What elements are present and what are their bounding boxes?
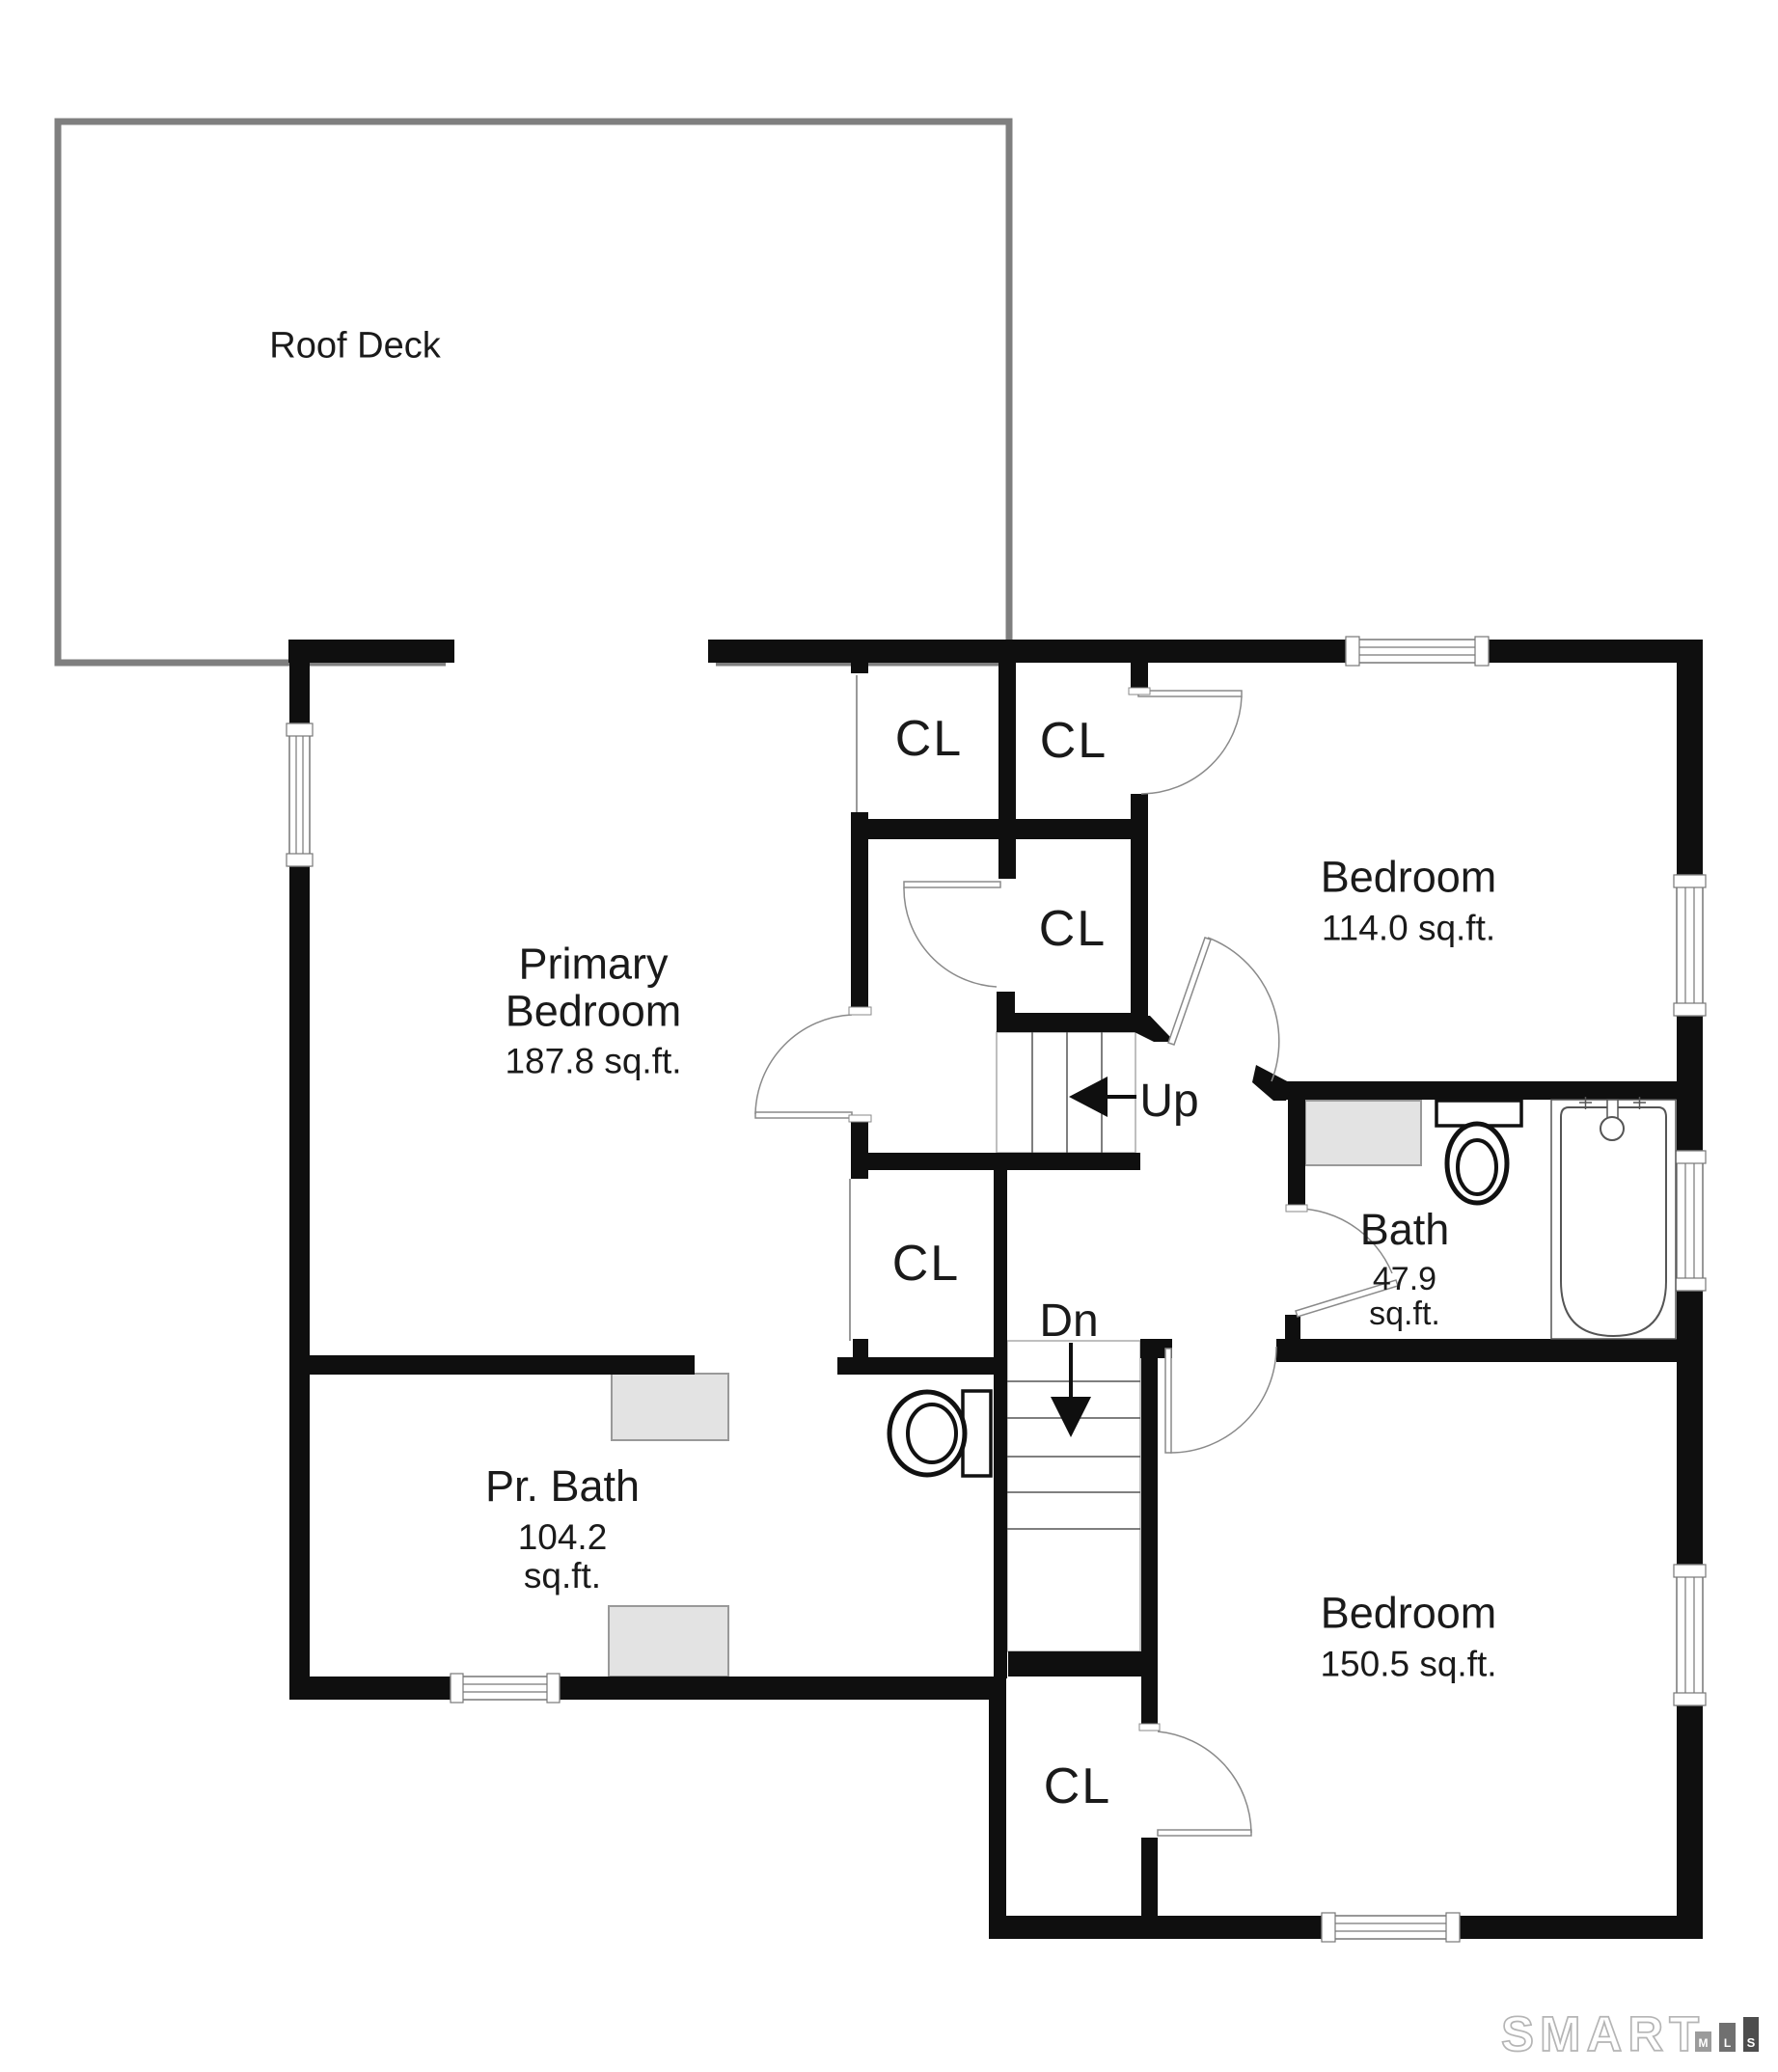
bath-vanity (1305, 1101, 1421, 1165)
pr-bath-vanity-upper (612, 1374, 728, 1440)
roof-deck-label: Roof Deck (269, 326, 440, 366)
stairs-down-label: Dn (1039, 1296, 1098, 1347)
bedroom-lower-label: Bedroom 150.5 sq.ft. (1320, 1591, 1496, 1684)
roof-deck-outline (58, 122, 1009, 669)
stairs-down (1007, 1341, 1140, 1651)
walls (288, 640, 1703, 1939)
floorplan-drawing: SMART M L S (0, 0, 1778, 2072)
svg-text:S: S (1747, 2035, 1756, 2050)
toilet-pr-bath (889, 1391, 991, 1476)
closet-label-hall: CL (892, 1237, 960, 1291)
svg-text:M: M (1699, 2036, 1709, 2050)
closet-label-top-right: CL (1040, 714, 1108, 768)
pr-bath-label: Pr. Bath 104.2 sq.ft. (485, 1463, 640, 1595)
pr-bath-vanity-lower (609, 1606, 728, 1677)
smartmls-logo: SMART M L S (1501, 2006, 1759, 2061)
primary-bedroom-label: Primary Bedroom 187.8 sq.ft. (505, 941, 681, 1080)
bedroom-upper-label: Bedroom 114.0 sq.ft. (1321, 855, 1497, 948)
bathtub (1551, 1097, 1676, 1339)
closet-label-middle: CL (1039, 902, 1107, 956)
window-right-upper (1674, 875, 1706, 1016)
stairs-up-label: Up (1139, 1077, 1198, 1127)
window-right-middle (1674, 1151, 1706, 1291)
window-bottom (1322, 1913, 1460, 1942)
logo-brand-text: SMART (1501, 2006, 1705, 2061)
toilet-bath (1436, 1101, 1521, 1203)
closet-label-top-left: CL (895, 712, 963, 766)
window-right-lower (1674, 1565, 1706, 1705)
svg-text:L: L (1724, 2036, 1731, 2050)
bath-label: Bath 47.9 sq.ft. (1360, 1207, 1450, 1332)
window-left (287, 723, 313, 866)
window-top (1346, 637, 1489, 666)
floorplan: SMART M L S Roof Deck Primary Bedroom 18… (0, 0, 1778, 2072)
stairs-up (997, 1032, 1136, 1153)
window-bottom-left (451, 1674, 560, 1703)
closet-label-bottom: CL (1044, 1759, 1111, 1813)
